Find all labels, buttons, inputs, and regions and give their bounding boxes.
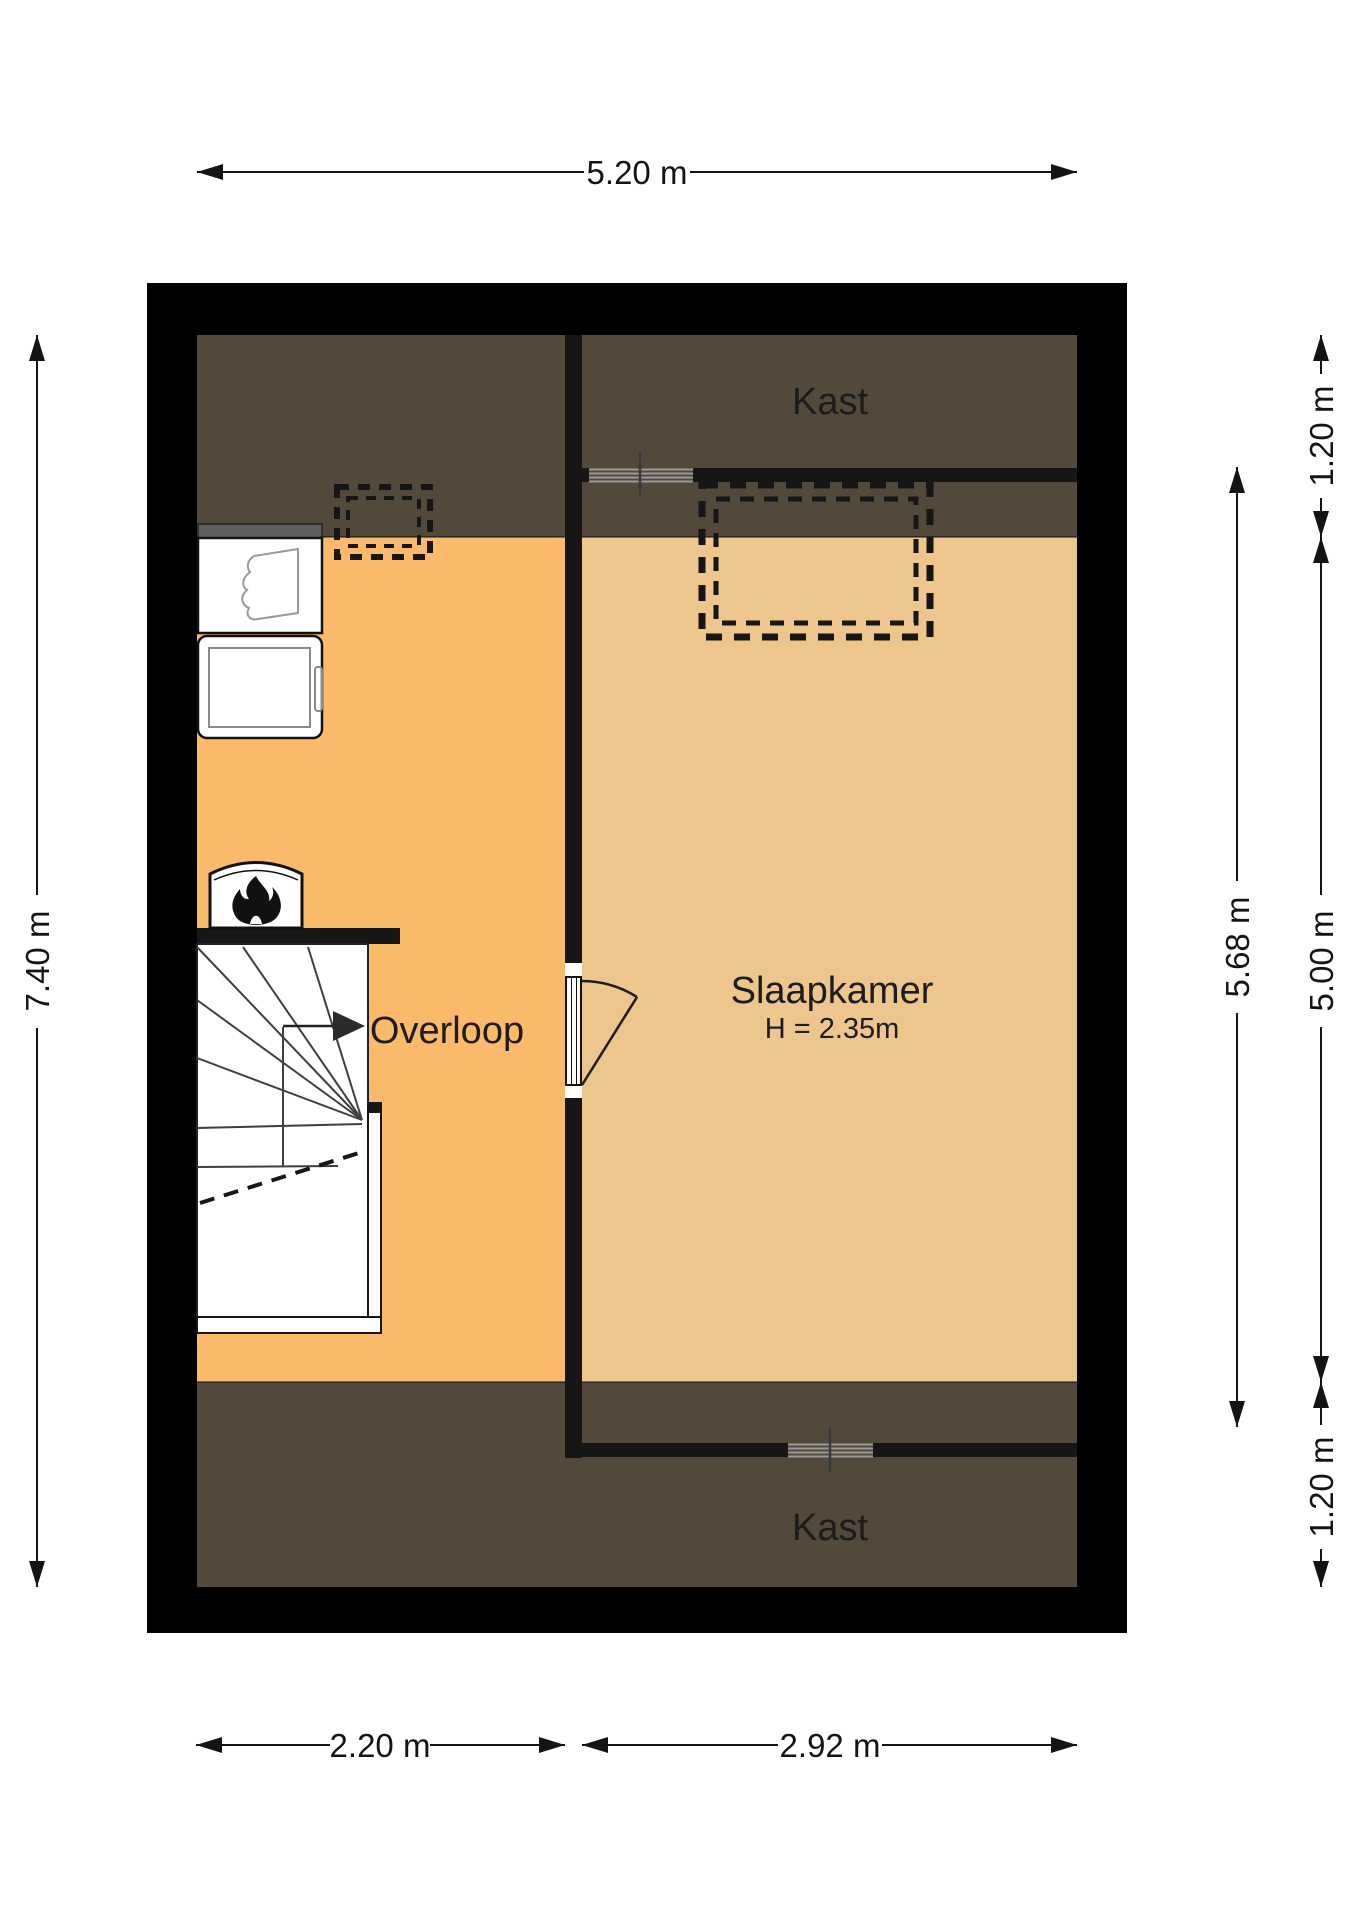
slaapkamer-height-note: H = 2.35m xyxy=(765,1013,900,1045)
door-jamb-top xyxy=(565,963,582,977)
slaapkamer-floor xyxy=(582,537,1077,1382)
slaapkamer-label: Slaapkamer xyxy=(731,970,934,1012)
arrow-down-icon xyxy=(1313,511,1329,537)
dim-bedroom-inner-label: 5.68 m xyxy=(1219,897,1256,998)
counter-top xyxy=(198,524,322,538)
arrow-down-icon xyxy=(1313,1561,1329,1587)
dim-right-bottom: 1.20 m xyxy=(1303,1382,1340,1587)
dim-width-total-label: 5.20 m xyxy=(587,154,688,191)
staircase xyxy=(197,944,381,1333)
arrow-left-icon xyxy=(196,1737,222,1753)
dim-right-middle-label: 5.00 m xyxy=(1303,911,1340,1012)
divider-wall-lower xyxy=(565,1098,582,1458)
dim-right-top-label: 1.20 m xyxy=(1303,386,1340,487)
arrow-right-icon xyxy=(1051,1737,1077,1753)
dim-height-total-label: 7.40 m xyxy=(19,911,56,1012)
arrow-up-icon xyxy=(29,335,45,361)
door-leaf-closed xyxy=(566,977,581,1085)
kast-top-wall-stub xyxy=(582,468,589,482)
dim-bottom-left: 2.20 m xyxy=(196,1727,565,1764)
dim-bottom-right: 2.92 m xyxy=(582,1727,1077,1764)
dim-right-bottom-label: 1.20 m xyxy=(1303,1437,1340,1538)
arrow-down-icon xyxy=(29,1561,45,1587)
arrow-up-icon xyxy=(1229,467,1245,493)
washing-machine xyxy=(198,636,322,738)
stair-banister-cap xyxy=(368,1103,381,1113)
stair-banister xyxy=(368,1103,381,1332)
arrow-up-icon xyxy=(1313,335,1329,361)
kast-bottom-label: Kast xyxy=(792,1507,868,1549)
stair-bottom-rail xyxy=(197,1317,381,1333)
arrow-left-icon xyxy=(197,164,223,180)
divider-wall-upper xyxy=(565,335,582,963)
sink xyxy=(198,538,322,633)
dim-bottom-right-label: 2.92 m xyxy=(780,1727,881,1764)
floorplan-drawing: Kast Slaapkamer H = 2.35m Overloop Kast … xyxy=(0,0,1358,1920)
dim-width-total: 5.20 m xyxy=(197,154,1077,191)
arrow-up-icon xyxy=(1313,537,1329,563)
kast-top-label: Kast xyxy=(792,381,868,423)
dim-height-total: 7.40 m xyxy=(19,335,56,1587)
kast-bottom-wall-right xyxy=(873,1443,1077,1457)
arrow-down-icon xyxy=(1313,1356,1329,1382)
arrow-right-icon xyxy=(539,1737,565,1753)
boiler xyxy=(210,863,302,929)
dim-right-top: 1.20 m xyxy=(1303,335,1340,537)
dim-bedroom-inner: 5.68 m xyxy=(1219,467,1256,1427)
dim-bottom-left-label: 2.20 m xyxy=(330,1727,431,1764)
kast-top-wall xyxy=(693,468,1077,482)
arrow-up-icon xyxy=(1313,1382,1329,1408)
kast-bottom-wall-left xyxy=(582,1443,788,1457)
sink-bowl-icon xyxy=(242,549,298,619)
dim-right-middle: 5.00 m xyxy=(1303,537,1340,1382)
arrow-down-icon xyxy=(1229,1401,1245,1427)
arrow-left-icon xyxy=(582,1737,608,1753)
stairs-head-wall xyxy=(197,928,400,944)
arrow-right-icon xyxy=(1051,164,1077,180)
floorplan-page: Kast Slaapkamer H = 2.35m Overloop Kast … xyxy=(0,0,1358,1920)
overloop-label: Overloop xyxy=(370,1010,524,1052)
door-jamb-bottom xyxy=(565,1085,582,1098)
